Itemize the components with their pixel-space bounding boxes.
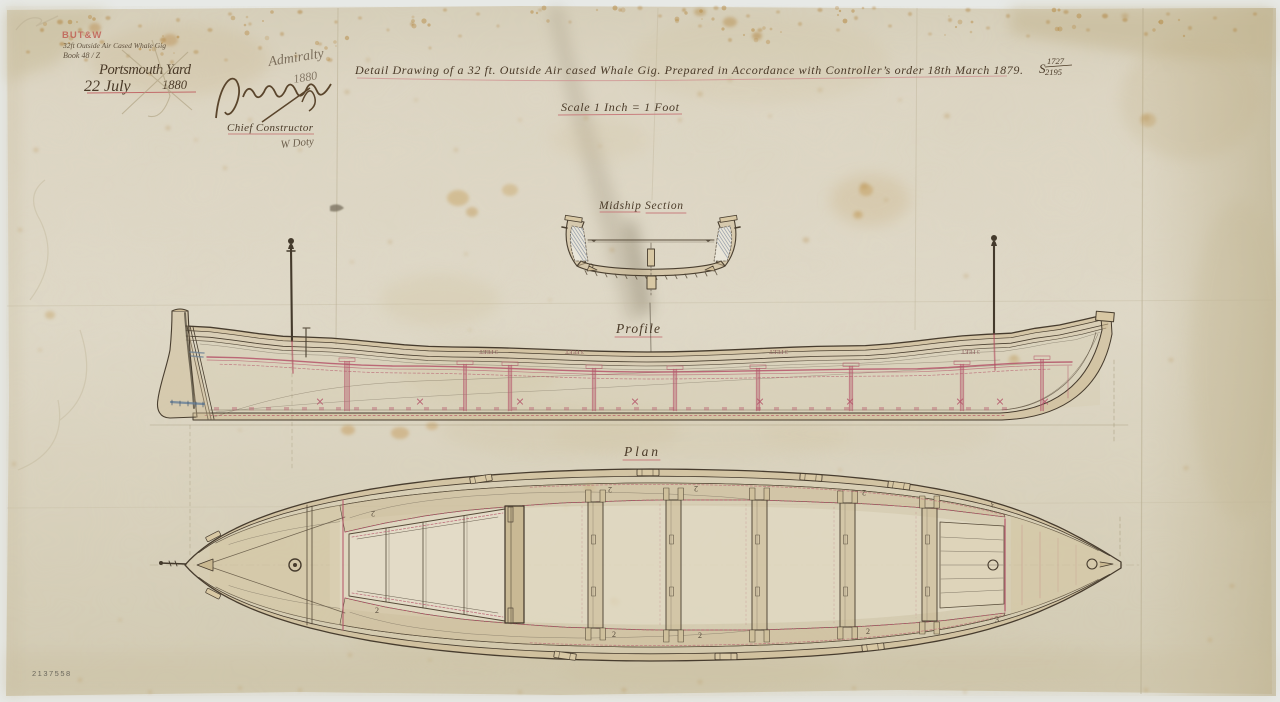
svg-text:BUT&W: BUT&W xyxy=(62,30,102,41)
svg-text:3 FEET: 3 FEET xyxy=(479,348,498,354)
svg-text:2: 2 xyxy=(608,485,612,494)
svg-text:3 FEET: 3 FEET xyxy=(769,348,788,354)
svg-text:2137558: 2137558 xyxy=(32,669,72,678)
svg-text:2195: 2195 xyxy=(1045,67,1062,77)
svg-text:2: 2 xyxy=(612,630,616,639)
svg-text:3 FEET: 3 FEET xyxy=(565,348,584,354)
svg-text:2: 2 xyxy=(866,627,870,636)
svg-text:Midship Section: Midship Section xyxy=(598,200,683,212)
svg-text:Chief Constructor: Chief Constructor xyxy=(227,122,314,134)
svg-text:3 FEET: 3 FEET xyxy=(961,348,980,354)
svg-text:32ft Outside Air Cased Whale G: 32ft Outside Air Cased Whale Gig xyxy=(62,41,166,50)
svg-text:2: 2 xyxy=(694,484,698,493)
svg-text:1880: 1880 xyxy=(162,78,188,92)
svg-text:2: 2 xyxy=(698,631,702,640)
svg-text:Profile: Profile xyxy=(615,321,660,336)
svg-text:Scale 1 Inch = 1 Foot: Scale 1 Inch = 1 Foot xyxy=(561,100,680,114)
svg-text:2: 2 xyxy=(371,509,375,518)
svg-text:2: 2 xyxy=(862,488,866,497)
svg-text:2: 2 xyxy=(375,606,379,615)
svg-text:Detail Drawing of a 32 ft. Out: Detail Drawing of a 32 ft. Outside Air c… xyxy=(354,63,1023,77)
svg-text:1727: 1727 xyxy=(1047,56,1065,66)
svg-text:3: 3 xyxy=(991,500,995,509)
svg-text:Book 48 / Z: Book 48 / Z xyxy=(63,51,101,60)
svg-text:3: 3 xyxy=(995,615,999,624)
